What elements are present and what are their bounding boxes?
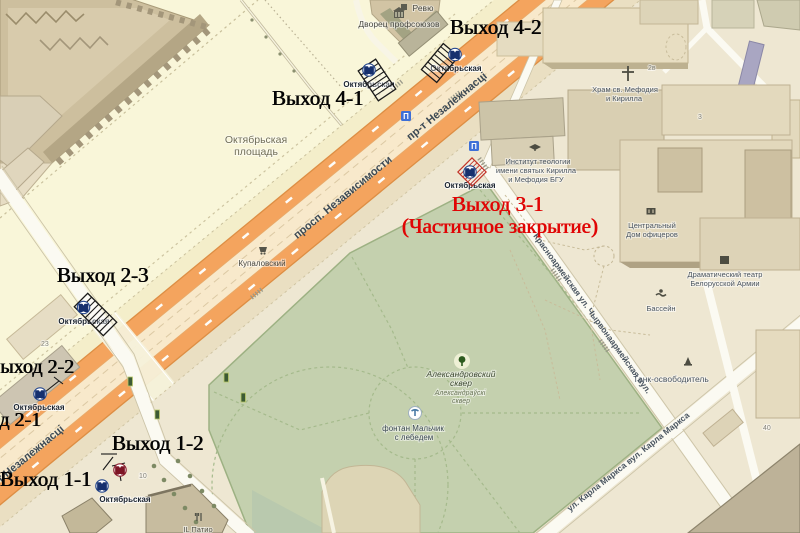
svg-text:и Мефодия БГУ: и Мефодия БГУ [508,175,564,184]
svg-text:Драматический театр: Драматический театр [688,270,763,279]
svg-text:Ревю: Ревю [413,3,435,13]
svg-text:и Кирилла: и Кирилла [606,94,643,103]
svg-text:40: 40 [763,425,771,432]
svg-text:Белорусской Армии: Белорусской Армии [690,279,759,288]
svg-text:с лебедем: с лебедем [395,433,434,442]
svg-text:3: 3 [698,114,702,121]
svg-text:П: П [403,112,409,121]
svg-text:сквер: сквер [450,378,472,388]
svg-text:Дом офицеров: Дом офицеров [626,230,678,239]
svg-text:Институт теологии: Институт теологии [506,157,571,166]
svg-text:Александраўскі: Александраўскі [434,389,486,397]
svg-text:Храм св. Мефодия: Храм св. Мефодия [592,85,658,94]
svg-text:Октябрьская: Октябрьская [99,495,150,504]
svg-text:сквер: сквер [452,398,470,405]
svg-text:П: П [471,142,477,151]
svg-text:площадь: площадь [234,146,278,158]
svg-text:IL Патио: IL Патио [183,525,212,533]
svg-text:фонтан Мальчик: фонтан Мальчик [382,424,444,433]
svg-text:Бассейн: Бассейн [646,304,675,313]
svg-text:Дворец профсоюзов: Дворец профсоюзов [358,19,440,29]
svg-text:23: 23 [41,341,49,348]
svg-text:2в: 2в [648,65,656,72]
svg-text:Центральный: Центральный [628,221,676,230]
svg-text:имени святых Кирилла: имени святых Кирилла [496,166,577,175]
svg-text:Купаловский: Купаловский [238,259,285,268]
svg-text:Октябрьская: Октябрьская [225,134,287,146]
svg-text:10: 10 [139,473,147,480]
